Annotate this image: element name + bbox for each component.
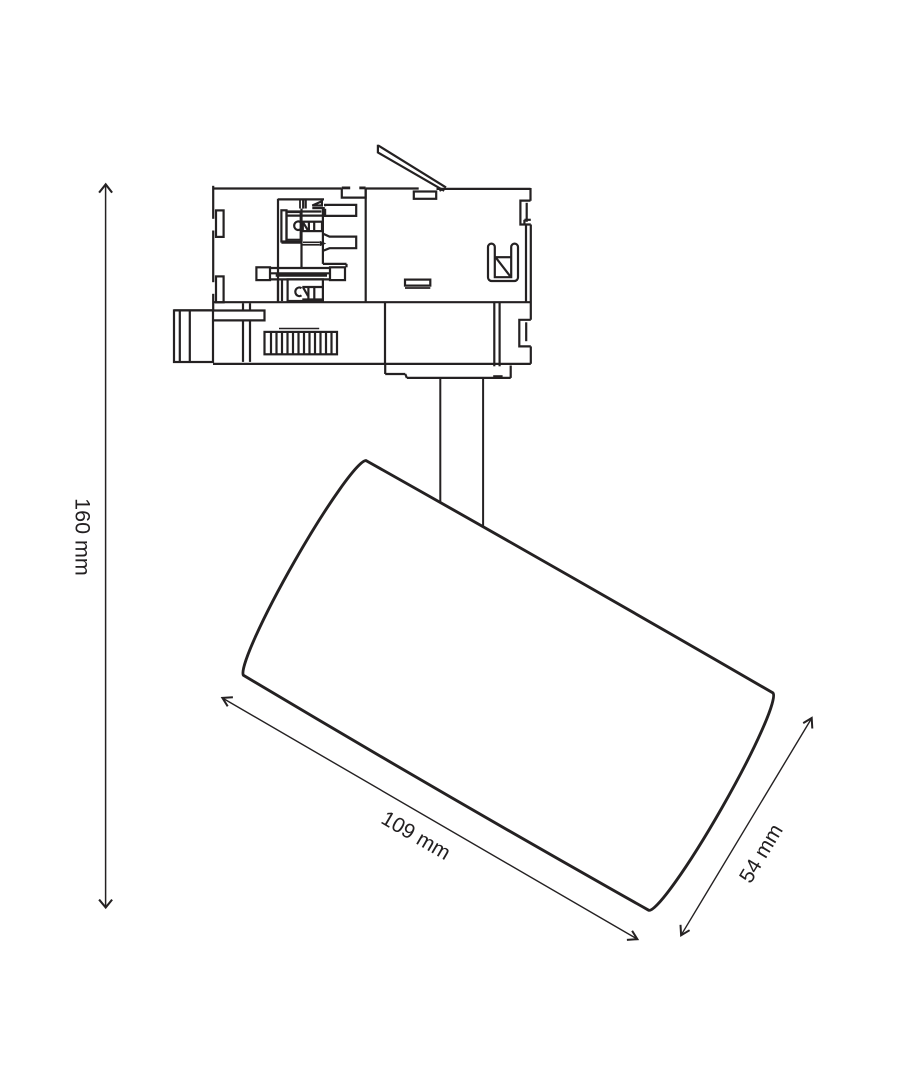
svg-text:160 mm: 160 mm [71, 498, 95, 576]
